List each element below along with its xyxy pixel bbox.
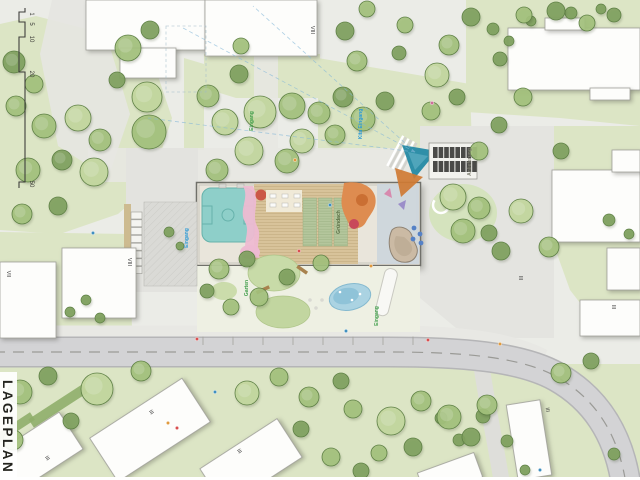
person-marker: [195, 337, 198, 340]
tree-highlight: [212, 262, 223, 273]
tree: [233, 38, 249, 54]
tree-highlight: [68, 108, 82, 122]
building: [508, 28, 640, 90]
bush: [520, 465, 530, 475]
tree-highlight: [19, 161, 32, 174]
tree: [449, 89, 465, 105]
tree: [109, 72, 125, 88]
building: [590, 88, 630, 100]
tree-highlight: [136, 86, 153, 103]
tree-highlight: [293, 132, 306, 145]
tree: [250, 288, 268, 306]
person-marker: [175, 426, 178, 429]
building: [205, 0, 317, 56]
bush: [624, 229, 634, 239]
scale-tick-label: 20: [28, 71, 34, 78]
title-block: LAGEPLAN: [0, 372, 17, 480]
pavilion-cell: [455, 147, 460, 158]
plan-label: Anlieferung: [467, 148, 473, 176]
tree-highlight: [238, 384, 251, 397]
pavilion-cell: [461, 147, 466, 158]
tree: [607, 8, 621, 22]
tree: [223, 299, 239, 315]
play-mound-3: [211, 282, 237, 300]
tree: [353, 463, 369, 479]
tree-highlight: [480, 398, 491, 409]
tree-highlight: [350, 54, 361, 65]
tree: [404, 438, 422, 456]
tree-highlight: [428, 66, 441, 79]
tree: [279, 269, 295, 285]
tree-highlight: [454, 222, 467, 235]
tree: [583, 353, 599, 369]
bush: [164, 227, 174, 237]
tree-highlight: [302, 390, 313, 401]
tree: [579, 15, 595, 31]
bush: [81, 295, 91, 305]
tree: [359, 1, 375, 17]
pavilion-cell: [439, 161, 444, 172]
storey-mark: VII: [5, 271, 11, 278]
pavilion-cell: [450, 147, 455, 158]
play-ball-pink: [349, 219, 359, 229]
bike-rack: [131, 235, 142, 242]
tree-highlight: [239, 141, 254, 156]
bush: [65, 307, 75, 317]
pavilion-cell: [439, 147, 444, 158]
tree-highlight: [442, 38, 453, 49]
tree: [397, 17, 413, 33]
play-ball-red: [256, 190, 267, 201]
person-marker: [213, 390, 216, 393]
tree: [481, 225, 497, 241]
tree: [462, 8, 480, 26]
bush: [176, 242, 184, 250]
person-marker: [369, 264, 372, 267]
pavilion-cell: [433, 161, 438, 172]
tree: [547, 2, 565, 20]
person-marker: [293, 158, 296, 161]
building: [612, 150, 640, 172]
tree-highlight: [200, 88, 212, 100]
tree-highlight: [85, 377, 103, 395]
tree: [333, 373, 349, 389]
tree-highlight: [414, 394, 425, 405]
tree: [493, 52, 507, 66]
roof-vent-2: [237, 184, 244, 188]
person-marker: [297, 249, 300, 252]
tree: [230, 65, 248, 83]
tree-highlight: [6, 54, 18, 66]
tree-highlight: [35, 117, 48, 130]
tree: [336, 22, 354, 40]
tree-highlight: [311, 105, 323, 117]
tree-highlight: [512, 202, 525, 215]
storey-mark: III: [610, 305, 616, 310]
pavilion-cell: [455, 161, 460, 172]
bush: [504, 36, 514, 46]
bush: [608, 448, 620, 460]
tree: [553, 143, 569, 159]
tree-highlight: [134, 364, 145, 375]
tree: [25, 75, 43, 93]
tree: [293, 421, 309, 437]
person-marker: [498, 342, 501, 345]
person-marker: [344, 329, 347, 332]
tree: [491, 117, 507, 133]
tree: [376, 92, 394, 110]
roof-vent-1: [219, 184, 226, 188]
tree: [392, 46, 406, 60]
tree: [200, 284, 214, 298]
roof-terrace: [266, 190, 302, 212]
plan-label: Garten: [244, 280, 250, 296]
tree: [239, 251, 255, 267]
pavilion-cell: [450, 161, 455, 172]
tree-highlight: [92, 132, 104, 144]
bike-rack: [131, 212, 142, 219]
tree-highlight: [336, 90, 347, 101]
person-marker: [166, 421, 169, 424]
tree-highlight: [471, 200, 483, 212]
tree-highlight: [136, 119, 155, 138]
tree: [322, 448, 340, 466]
tree: [344, 400, 362, 418]
plan-label: Kita Eingang: [358, 109, 364, 140]
green-roof-strip-1: [303, 198, 317, 246]
pavilion-cell: [444, 147, 449, 158]
bush: [596, 4, 606, 14]
tree-highlight: [84, 162, 99, 177]
tree: [313, 255, 329, 271]
tree-highlight: [443, 187, 457, 201]
pavilion-cell: [461, 161, 466, 172]
bush: [487, 23, 499, 35]
person-marker: [91, 231, 94, 234]
bush: [501, 435, 513, 447]
plan-label: Eingang: [184, 228, 190, 248]
tree-highlight: [381, 411, 396, 426]
storey-mark: III: [517, 276, 523, 281]
person-marker: [328, 203, 331, 206]
storey-mark: VIII: [126, 258, 132, 267]
tree: [371, 445, 387, 461]
scale-tick-label: 50: [28, 181, 34, 188]
site-plan-canvas: VIIIVIIVIIIIIIIIIIIIIIIIIIIII EingangKit…: [0, 0, 640, 480]
bush: [565, 7, 577, 19]
plan-label: Eingang: [374, 306, 380, 326]
tree: [422, 102, 440, 120]
tree-highlight: [15, 207, 26, 218]
tree-highlight: [282, 96, 296, 110]
bush: [603, 214, 615, 226]
storey-mark: VIII: [309, 26, 315, 35]
bike-rack: [131, 228, 142, 235]
tree-highlight: [209, 162, 221, 174]
tree: [63, 413, 79, 429]
plan-label: Eingang: [249, 111, 255, 131]
tree-highlight: [118, 38, 132, 52]
slide-detail: [356, 194, 368, 206]
tree-highlight: [328, 128, 339, 139]
person-marker: [538, 468, 541, 471]
bush: [95, 313, 105, 323]
tree: [39, 367, 57, 385]
pavilion-cell: [433, 147, 438, 158]
tree: [270, 368, 288, 386]
scale-tick-label: 10: [28, 36, 34, 43]
tree: [462, 428, 480, 446]
tree-highlight: [215, 112, 229, 126]
tree: [49, 197, 67, 215]
tree-highlight: [542, 240, 553, 251]
building: [607, 248, 640, 290]
tree: [492, 242, 510, 260]
tree-highlight: [440, 408, 453, 421]
bike-rack: [131, 220, 142, 227]
plan-label: Gründach: [336, 210, 342, 234]
tree: [514, 88, 532, 106]
building: [580, 300, 640, 336]
tree-highlight: [9, 99, 20, 110]
building: [62, 248, 136, 318]
person-marker: [426, 338, 429, 341]
person-marker: [430, 101, 433, 104]
pavilion-cell: [444, 161, 449, 172]
plan-title: LAGEPLAN: [0, 380, 15, 474]
tree: [141, 21, 159, 39]
tree-highlight: [554, 366, 565, 377]
site-plan-drawing: VIIIVIIVIIIIIIIIIIIIIIIIIIIII EingangKit…: [0, 0, 640, 480]
tree-highlight: [278, 152, 291, 165]
tree: [516, 7, 532, 23]
tree-highlight: [55, 153, 66, 164]
